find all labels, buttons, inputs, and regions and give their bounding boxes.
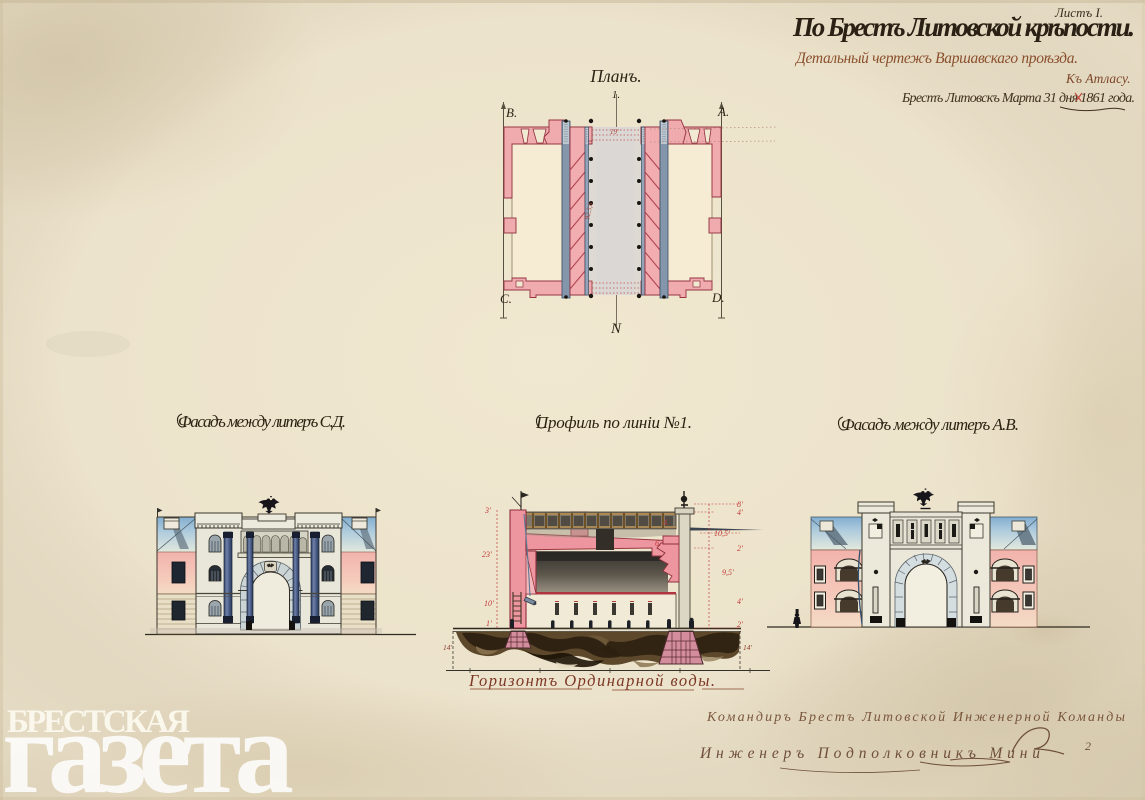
svg-text:Планъ.: Планъ. [589, 66, 641, 86]
svg-text:2': 2' [737, 544, 743, 553]
svg-text:4': 4' [737, 597, 743, 606]
svg-text:С.: С. [500, 291, 512, 306]
svg-text:Фасадъ между литеръ А.В.: Фасадъ между литеръ А.В. [841, 415, 1019, 434]
svg-text:Фасадъ между литеръ С.Д.: Фасадъ между литеръ С.Д. [178, 412, 346, 431]
svg-text:1': 1' [486, 619, 492, 628]
svg-text:14': 14' [443, 643, 453, 652]
svg-text:Детальный чертежъ Варшавскаго: Детальный чертежъ Варшавскаго проѣзда. [794, 50, 1078, 67]
svg-text:А.: А. [717, 104, 729, 119]
svg-text:6.: 6. [655, 539, 661, 548]
svg-text:4.: 4. [663, 518, 669, 527]
svg-text:2: 2 [1085, 739, 1091, 753]
svg-text:газета: газета [2, 686, 294, 800]
svg-text:23': 23' [482, 550, 492, 559]
svg-text:D.: D. [711, 290, 725, 305]
svg-text:10': 10' [484, 599, 494, 608]
svg-text:10,5': 10,5' [714, 529, 730, 538]
svg-text:9,5': 9,5' [722, 568, 734, 577]
svg-text:Къ Атласу.: Къ Атласу. [1065, 71, 1131, 86]
svg-text:1.: 1. [612, 89, 620, 101]
svg-text:14': 14' [743, 643, 753, 652]
svg-text:19': 19' [610, 128, 619, 136]
svg-text:N: N [610, 321, 622, 337]
svg-text:По Брестъ Литовской крѣпости.: По Брестъ Литовской крѣпости. [792, 12, 1135, 42]
svg-text:В.: В. [506, 105, 517, 120]
svg-text:3': 3' [484, 506, 491, 515]
svg-text:2': 2' [737, 620, 743, 629]
svg-text:Профиль по линіи №1.: Профиль по линіи №1. [535, 413, 692, 432]
svg-text:4': 4' [737, 508, 743, 517]
svg-text:Горизонтъ Ординарной воды.: Горизонтъ Ординарной воды. [468, 671, 715, 690]
svg-text:Брестъ Литовскъ Марта 31 дня 1: Брестъ Литовскъ Марта 31 дня 1861 года. [901, 91, 1135, 106]
svg-text:Командиръ Брестъ Литовской Инж: Командиръ Брестъ Литовской Инженерной Ко… [706, 710, 1125, 725]
